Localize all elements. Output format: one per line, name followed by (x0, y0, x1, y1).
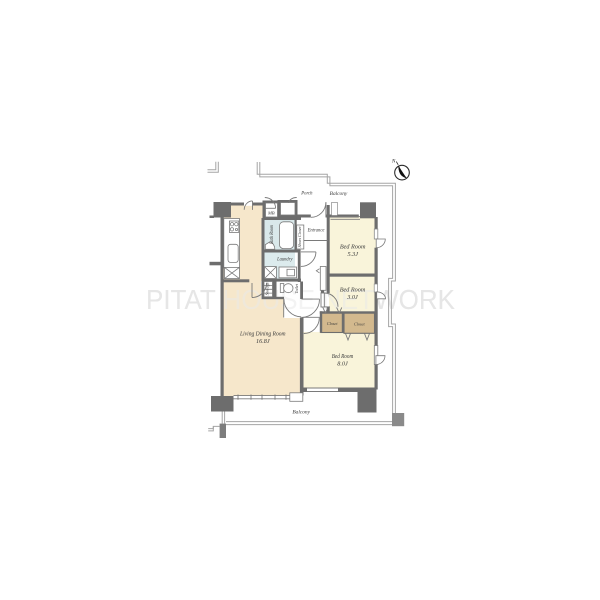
svg-text:Closet: Closet (354, 321, 366, 326)
svg-text:Shoes Closet: Shoes Closet (297, 226, 302, 248)
svg-text:Bath Room: Bath Room (270, 225, 275, 244)
svg-text:Laundry: Laundry (276, 257, 293, 263)
svg-text:Bed Room: Bed Room (340, 243, 366, 250)
svg-text:Balcony: Balcony (292, 410, 310, 416)
svg-text:8.0J: 8.0J (337, 361, 348, 368)
svg-text:Toilet: Toilet (294, 283, 299, 293)
svg-text:Closet: Closet (327, 321, 339, 326)
svg-text:Porch: Porch (300, 190, 312, 196)
svg-text:5.3J: 5.3J (347, 251, 358, 258)
svg-text:3.0J: 3.0J (346, 294, 358, 301)
svg-text:Bed Room: Bed Room (340, 287, 366, 294)
svg-text:16.8J: 16.8J (256, 338, 270, 345)
svg-text:Bed Room: Bed Room (332, 353, 354, 360)
svg-text:Balcony: Balcony (330, 191, 348, 197)
svg-text:Storage: Storage (264, 282, 269, 295)
svg-text:Living Dining Room: Living Dining Room (239, 330, 286, 337)
svg-text:N: N (391, 160, 396, 165)
svg-text:Entrance: Entrance (307, 227, 325, 233)
svg-text:MB: MB (267, 210, 275, 215)
